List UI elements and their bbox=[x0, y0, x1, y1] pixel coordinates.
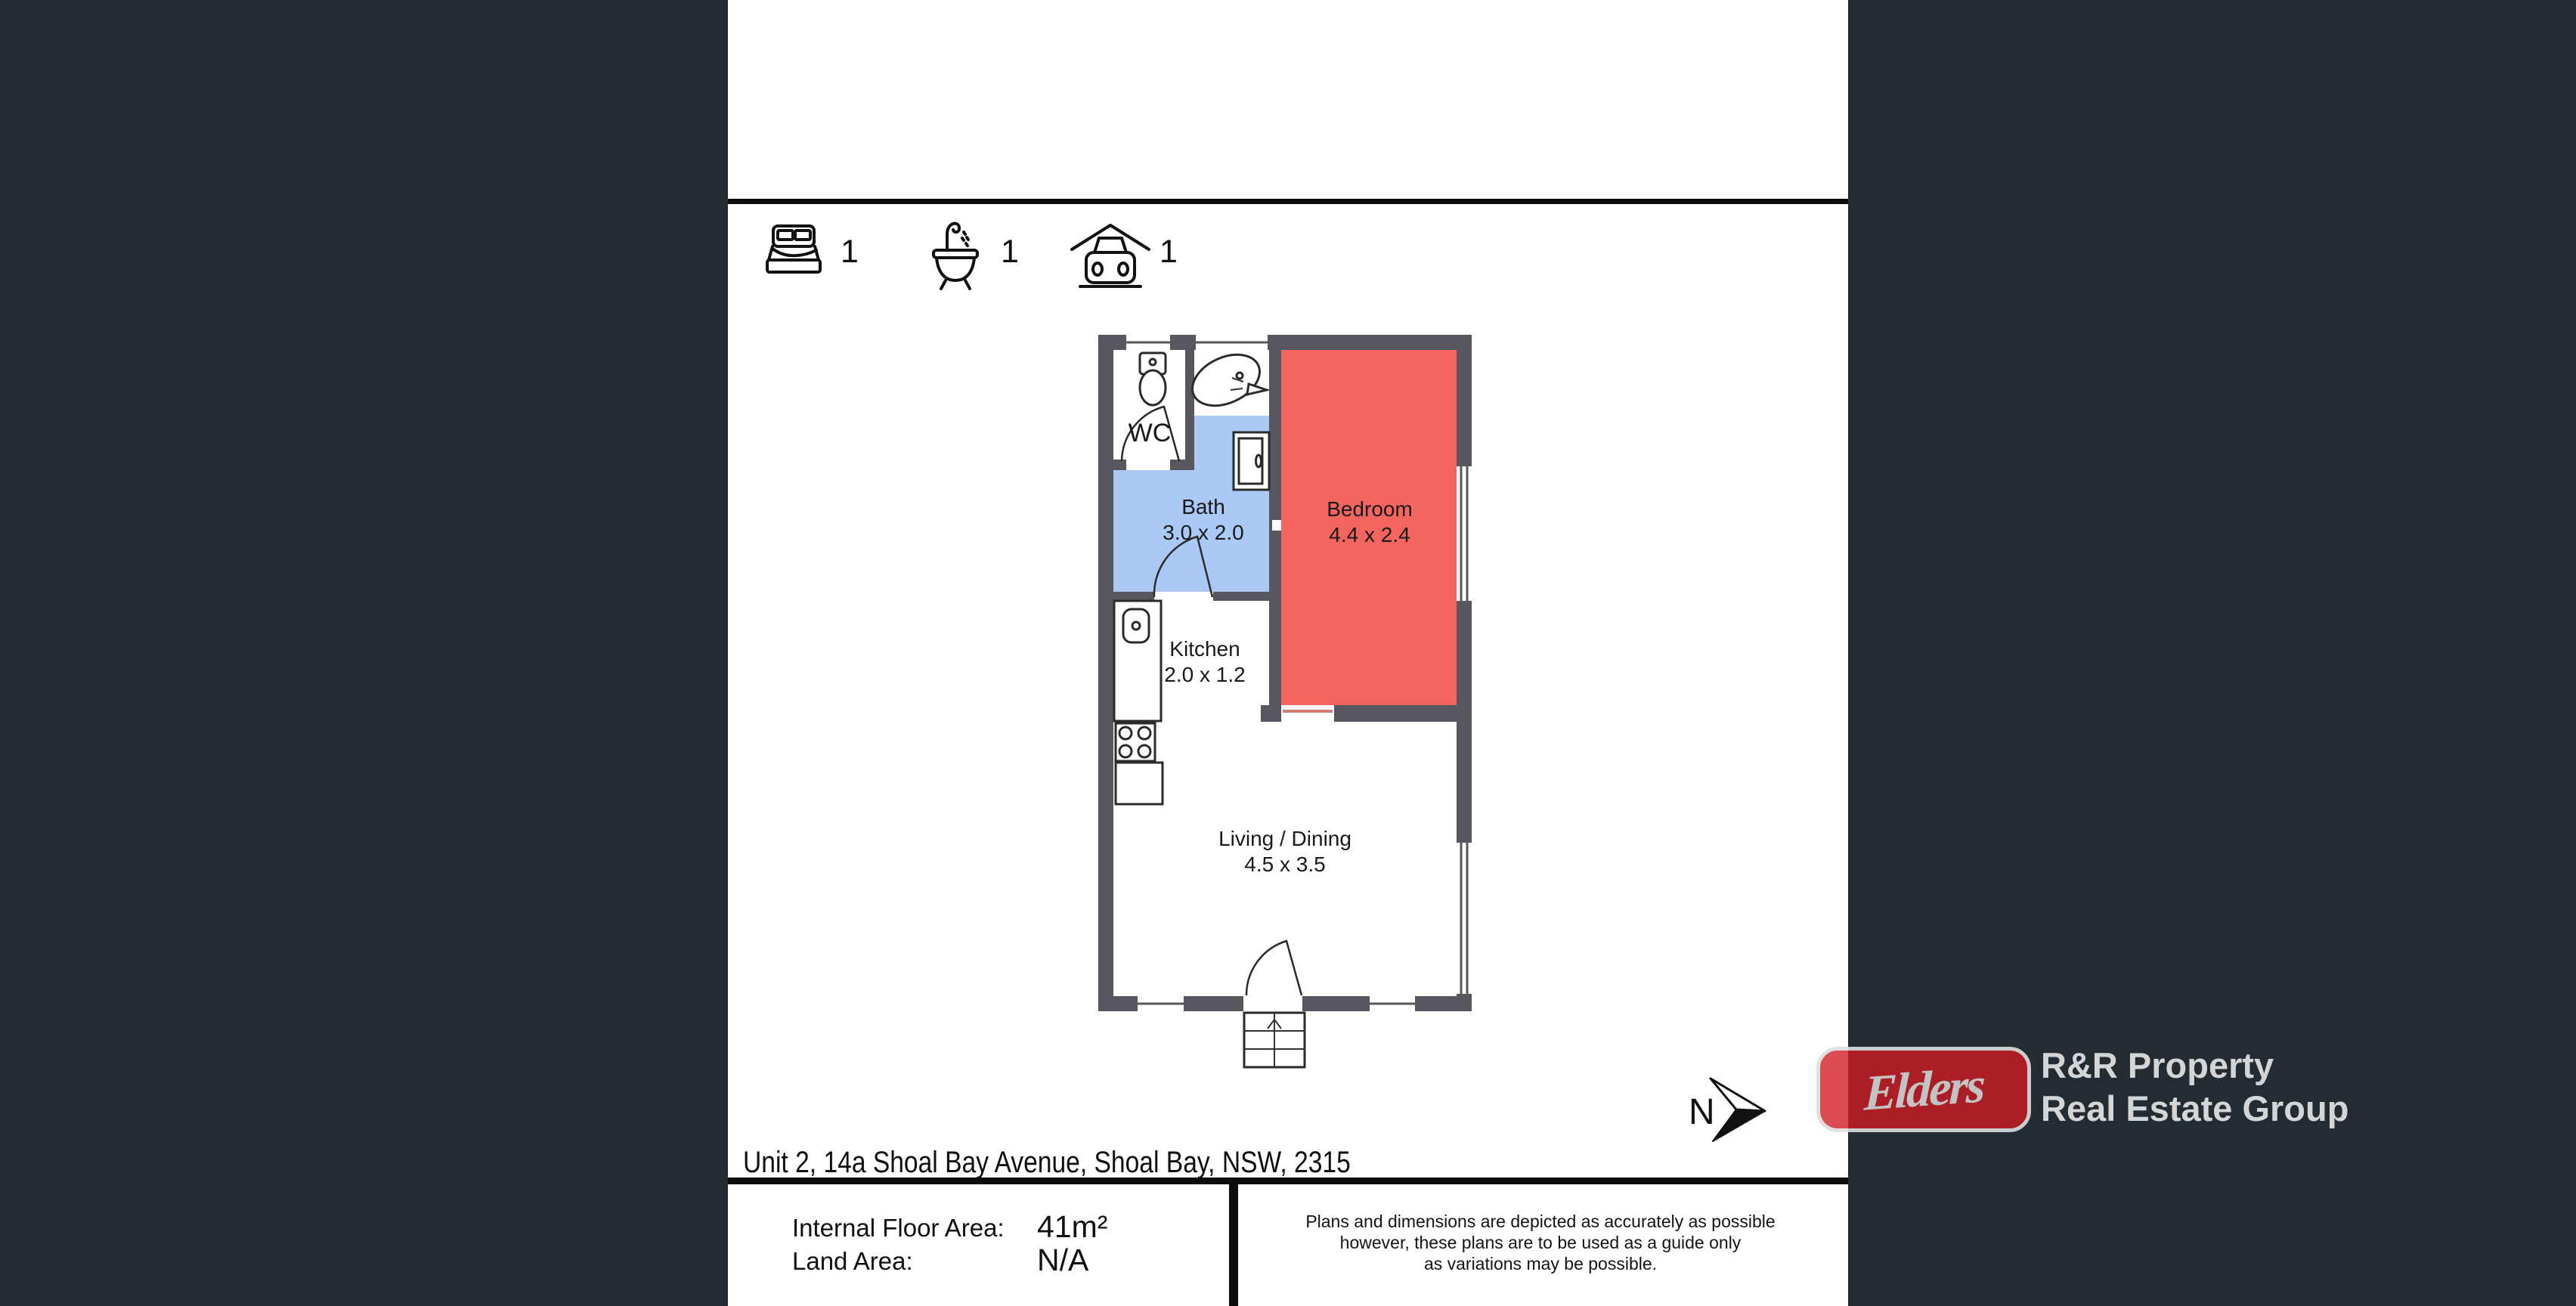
internal-area-label: Internal Floor Area: bbox=[792, 1214, 1005, 1243]
bedroom-dims: 4.4 x 2.4 bbox=[1329, 523, 1410, 546]
elders-logo-text: Elders bbox=[1863, 1057, 1984, 1122]
land-area-label: Land Area: bbox=[792, 1247, 913, 1276]
footer-vertical-divider bbox=[1229, 1179, 1238, 1306]
agency-name-line1: R&R Property bbox=[2041, 1044, 2348, 1087]
agency-name: R&R Property Real Estate Group bbox=[2041, 1044, 2348, 1130]
bath-icon bbox=[930, 215, 980, 290]
kitchen-dims: 2.0 x 1.2 bbox=[1164, 663, 1245, 686]
disclaimer-line: however, these plans are to be used as a… bbox=[1246, 1232, 1835, 1253]
bed-icon bbox=[760, 224, 827, 275]
property-address: Unit 2, 14a Shoal Bay Avenue, Shoal Bay,… bbox=[743, 1146, 1351, 1180]
living-dims: 4.5 x 3.5 bbox=[1244, 853, 1325, 876]
floor-plan: WC Bath 3.0 x 2.0 Bedroom 4.4 x 2.4 Kitc… bbox=[1088, 323, 1482, 1079]
disclaimer-line: Plans and dimensions are depicted as acc… bbox=[1246, 1211, 1835, 1232]
living-label: Living / Dining bbox=[1218, 827, 1351, 850]
kitchen-label: Kitchen bbox=[1169, 637, 1240, 661]
entry-steps bbox=[1244, 1013, 1305, 1067]
disclaimer-line: as variations may be possible. bbox=[1246, 1253, 1835, 1274]
bath-dims: 3.0 x 2.0 bbox=[1163, 521, 1243, 544]
wc-label: WC bbox=[1129, 419, 1172, 447]
agency-name-line2: Real Estate Group bbox=[2041, 1087, 2348, 1130]
carport-count: 1 bbox=[1160, 236, 1190, 268]
disclaimer: Plans and dimensions are depicted as acc… bbox=[1246, 1211, 1835, 1274]
bath-count: 1 bbox=[1001, 236, 1031, 268]
bed-count: 1 bbox=[841, 236, 871, 268]
entry-door bbox=[1246, 941, 1302, 995]
land-area-value: N/A bbox=[1037, 1243, 1088, 1278]
bath-label: Bath bbox=[1181, 495, 1225, 518]
top-divider-line bbox=[728, 199, 1848, 204]
carport-icon bbox=[1067, 221, 1153, 292]
bedroom-label: Bedroom bbox=[1327, 497, 1413, 521]
shower-icon bbox=[1184, 345, 1268, 416]
counter-icon bbox=[1116, 763, 1163, 804]
north-arrow-icon bbox=[1704, 1069, 1769, 1145]
elders-logo: Elders bbox=[1816, 1047, 2031, 1132]
internal-area-value: 41m² bbox=[1037, 1209, 1107, 1245]
